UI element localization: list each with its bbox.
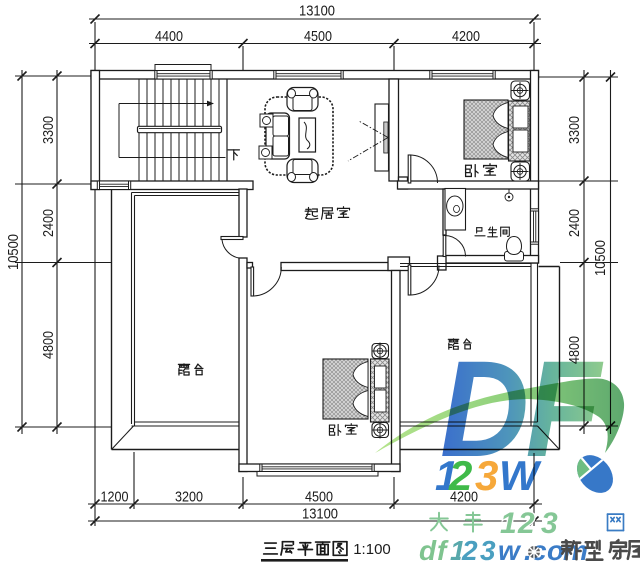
svg-text:w: w <box>498 535 522 566</box>
svg-text:2400: 2400 <box>40 209 57 237</box>
svg-text:3300: 3300 <box>40 116 57 144</box>
svg-text:2400: 2400 <box>566 209 583 237</box>
svg-text:3200: 3200 <box>175 489 203 506</box>
svg-text:4400: 4400 <box>155 28 183 45</box>
svg-text:3: 3 <box>480 535 496 566</box>
svg-text:10500: 10500 <box>592 240 609 276</box>
svg-text:d: d <box>419 535 437 566</box>
svg-text:4800: 4800 <box>40 331 57 359</box>
svg-text:1200: 1200 <box>101 489 129 506</box>
svg-text:3300: 3300 <box>566 116 583 144</box>
svg-text:W: W <box>499 452 542 499</box>
svg-text:3: 3 <box>475 452 498 499</box>
svg-text:o: o <box>547 535 564 566</box>
svg-text:2: 2 <box>448 452 472 499</box>
svg-text:4500: 4500 <box>305 489 333 506</box>
svg-text:2: 2 <box>461 535 478 566</box>
svg-text:13100: 13100 <box>302 506 338 523</box>
svg-text:4500: 4500 <box>304 28 332 45</box>
svg-text:4200: 4200 <box>452 28 480 45</box>
svg-text:10500: 10500 <box>5 234 22 270</box>
svg-text:13100: 13100 <box>299 3 335 20</box>
svg-text:1:100: 1:100 <box>353 541 391 558</box>
